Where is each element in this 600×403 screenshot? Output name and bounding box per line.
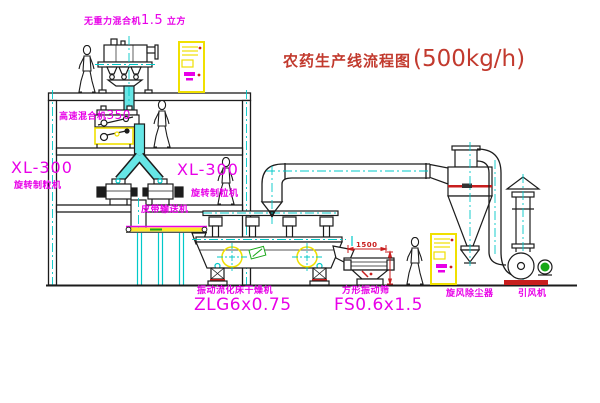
granulator-right-model: XL-300 [177, 162, 239, 178]
granulator-right-name: 旋转制粒机 [191, 190, 239, 199]
gravity-mixer-label: 无重力混合机1.5 立方 [84, 14, 186, 27]
conveyor-legs [138, 233, 184, 285]
page-title: 农药生产线流程图 (500kg/h) [283, 46, 525, 72]
granulator-left-name: 旋转制粒机 [14, 182, 62, 191]
fan-label: 引风机 [518, 290, 547, 299]
fluid-bed-dryer [192, 211, 346, 285]
title-text: 农药生产线流程图 [283, 50, 411, 71]
belt-conveyor-label: 皮带输送机 [141, 206, 189, 215]
cyclone-label: 旋风除尘器 [446, 290, 494, 299]
granulator-right [143, 179, 183, 205]
induced-draft-fan [504, 253, 552, 285]
title-capacity: (500kg/h) [413, 46, 525, 72]
dimension-width-label: 1500 [356, 241, 377, 249]
flow-diagram: 农药生产线流程图 (500kg/h) 无重力混合机1.5 立方 高速混合机350… [0, 0, 600, 403]
control-cabinet-icon [179, 42, 204, 92]
dryer-model-label: ZLG6x0.75 [194, 297, 292, 314]
granulator-left-model: XL-300 [11, 160, 73, 176]
worker-figure-icon [154, 100, 170, 147]
worker-figure-icon [79, 45, 95, 92]
hood-bellows [209, 217, 333, 237]
screen-model-label: FS0.6x1.5 [334, 297, 423, 314]
worker-figure-icon [407, 237, 423, 284]
high-speed-mixer-label: 高速混合机350 [59, 109, 131, 122]
control-cabinet-icon [431, 234, 456, 284]
